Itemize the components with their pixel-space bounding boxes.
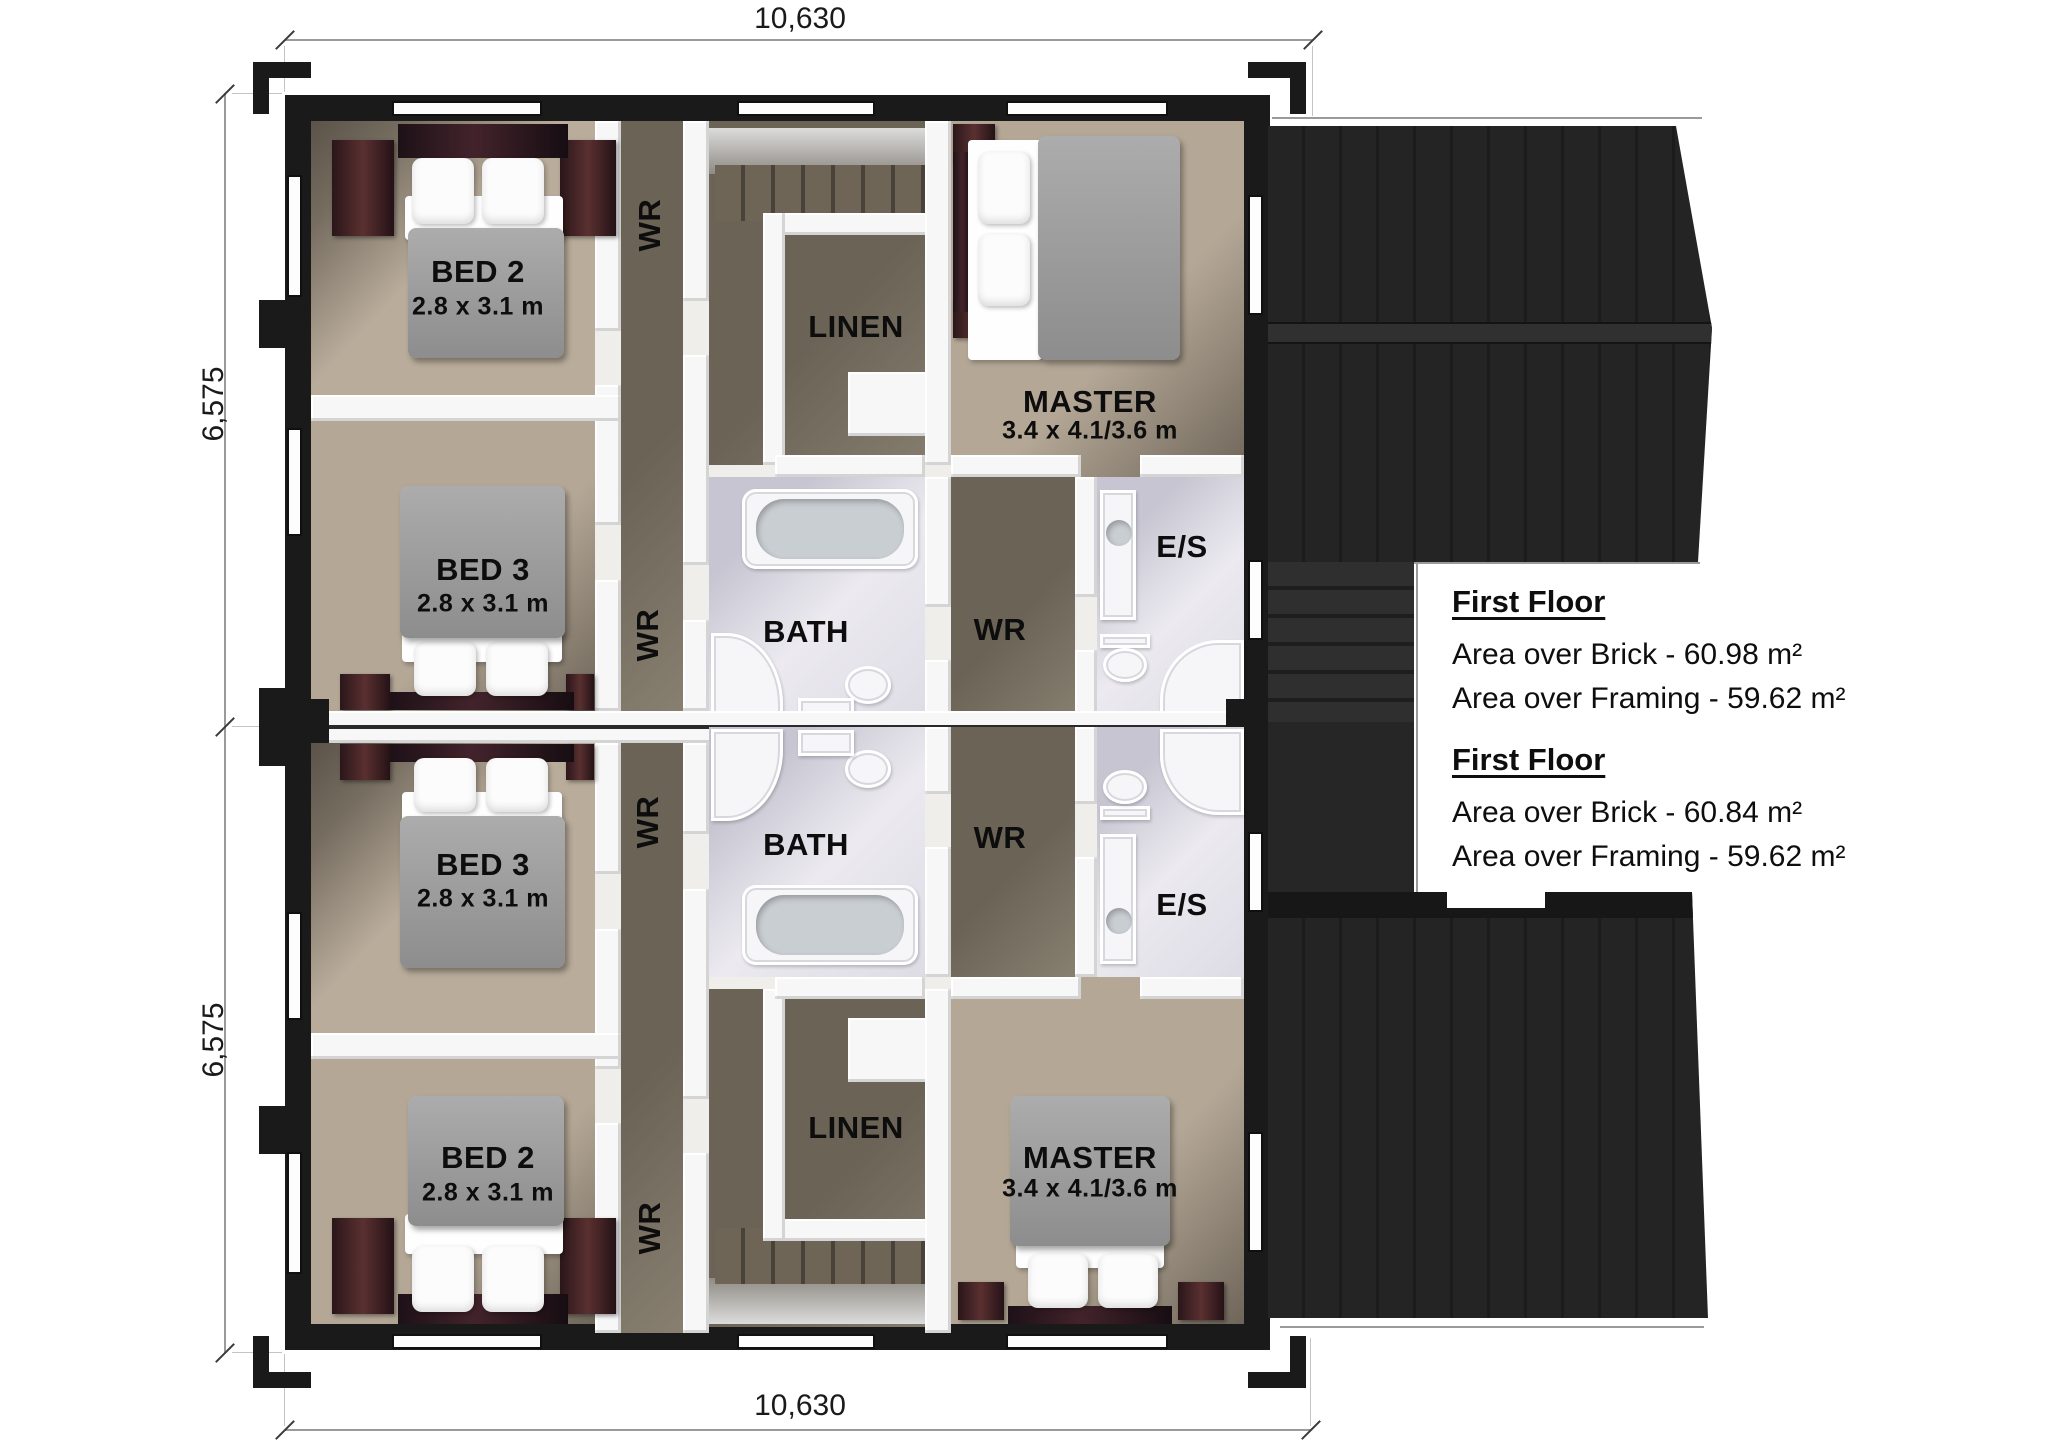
dimension-label-left-lower: 6,575: [197, 1002, 231, 1077]
interior-wall: [595, 743, 621, 874]
bedside-cabinet: [560, 140, 616, 236]
interior-wall: [683, 121, 709, 301]
pillow: [482, 1246, 544, 1312]
toilet-cistern: [1100, 634, 1150, 648]
extension-line: [1310, 1338, 1311, 1426]
room-label-es-a: E/S: [1156, 529, 1207, 565]
annotation-line: Area over Brick - 60.84 m²: [1452, 796, 1872, 830]
interior-wall: [1140, 455, 1244, 477]
interior-wall: [1140, 977, 1244, 999]
room-label-bed3-b: BED 3: [436, 847, 530, 883]
room-label-es-b: E/S: [1156, 887, 1207, 923]
room-size-bed2-a: 2.8 x 3.1 m: [412, 293, 544, 322]
interior-wall: [951, 977, 1081, 999]
roof-trim: [1290, 62, 1306, 114]
interior-wall: [925, 121, 951, 465]
pillow: [412, 1246, 474, 1312]
window: [1248, 1132, 1263, 1252]
window: [737, 1334, 875, 1349]
bedside-cabinet: [340, 674, 390, 710]
pillow: [486, 758, 548, 812]
toilet-cistern: [1100, 806, 1150, 820]
wall-stub: [259, 300, 285, 348]
window: [392, 1334, 542, 1349]
roof-ridge: [1268, 322, 1712, 344]
dimension-label-top: 10,630: [754, 2, 846, 36]
linen-wall: [763, 213, 785, 465]
annotation-line: Area over Framing - 59.62 m²: [1452, 682, 1872, 716]
window: [1248, 560, 1263, 640]
pillow: [482, 158, 544, 224]
room-label-wr-hall-b: WR: [974, 820, 1027, 856]
room-wr-a-hall-floor: [951, 477, 1075, 727]
room-label-master-b: MASTER: [1023, 1140, 1157, 1176]
window: [1248, 195, 1263, 315]
interior-wall: [925, 727, 951, 794]
window: [287, 1152, 302, 1274]
window: [1006, 1334, 1168, 1349]
roof-outline: [1414, 562, 1700, 564]
window: [287, 428, 302, 536]
roof-trim: [253, 62, 269, 114]
room-size-bed3-b: 2.8 x 3.1 m: [417, 885, 549, 914]
room-label-bath-b: BATH: [763, 827, 849, 863]
roof-lower: [1268, 878, 1710, 1325]
room-size-bed3-a: 2.8 x 3.1 m: [417, 590, 549, 619]
room-label-bed3-a: BED 3: [436, 552, 530, 588]
pillow: [1098, 1254, 1158, 1308]
room-label-wr-mid-a: WR: [630, 609, 666, 662]
dimension-line-top: [285, 39, 1313, 41]
bedside-cabinet: [340, 744, 390, 780]
floor-plan-sheet: { "drawing": { "type": "first-floor dupl…: [0, 0, 2048, 1448]
interior-wall: [1075, 857, 1097, 977]
bedside-cabinet: [332, 1218, 394, 1314]
interior-wall: [683, 743, 709, 834]
interior-wall: [1075, 477, 1097, 597]
dimension-line-bottom: [285, 1429, 1311, 1431]
pillow: [1028, 1254, 1088, 1308]
stair-roof-strip: [1268, 562, 1414, 900]
interior-wall: [311, 1033, 621, 1059]
bed-headboard: [1008, 1306, 1172, 1324]
basin: [1106, 908, 1132, 934]
room-label-linen-a: LINEN: [808, 309, 904, 345]
bed-headboard: [390, 692, 574, 710]
interior-wall: [683, 620, 709, 711]
linen-wall: [763, 1219, 931, 1241]
area-annotation-unit-a: First Floor Area over Brick - 60.98 m² A…: [1452, 584, 1872, 716]
toilet: [1103, 648, 1147, 682]
roof-trim: [253, 1336, 269, 1388]
pillow: [414, 642, 476, 696]
interior-wall: [775, 455, 925, 477]
annotation-title: First Floor: [1452, 584, 1872, 620]
interior-wall: [925, 477, 951, 607]
dimension-label-bottom: 10,630: [754, 1389, 846, 1423]
pillow: [414, 758, 476, 812]
window: [737, 101, 875, 116]
roof-outline: [1272, 117, 1702, 119]
room-label-bed2-b: BED 2: [441, 1140, 535, 1176]
interior-wall: [925, 847, 951, 977]
pillow: [978, 152, 1030, 224]
room-size-master-a: 3.4 x 4.1/3.6 m: [1002, 417, 1178, 446]
pillow: [412, 158, 474, 224]
room-label-wr-closet-b: WR: [632, 1202, 668, 1255]
basin: [798, 730, 854, 756]
room-size-master-b: 3.4 x 4.1/3.6 m: [1002, 1175, 1178, 1204]
window: [1248, 832, 1263, 912]
interior-wall: [595, 580, 621, 711]
window: [1006, 101, 1168, 116]
interior-wall: [683, 889, 709, 1099]
interior-wall: [1075, 727, 1097, 804]
vanity: [1100, 834, 1136, 964]
vanity: [1100, 490, 1136, 620]
bed-headboard: [398, 124, 568, 158]
dimension-label-left-upper: 6,575: [197, 366, 231, 441]
interior-wall: [951, 455, 1081, 477]
roof-trim: [1290, 1336, 1306, 1388]
roof-upper: [1268, 126, 1712, 562]
room-label-linen-b: LINEN: [808, 1110, 904, 1146]
window: [287, 175, 302, 297]
wall-stub: [259, 688, 285, 766]
bedside-cabinet: [958, 1282, 1004, 1320]
interior-wall: [311, 395, 621, 421]
interior-wall: [683, 1153, 709, 1333]
room-size-bed2-b: 2.8 x 3.1 m: [422, 1179, 554, 1208]
room-label-wr-mid-b: WR: [630, 796, 666, 849]
pillow: [978, 234, 1030, 306]
roof-outline: [1280, 1326, 1704, 1328]
area-annotation-unit-b: First Floor Area over Brick - 60.84 m² A…: [1452, 742, 1872, 874]
roof-top-face: [1268, 892, 1710, 918]
room-label-wr-closet-a: WR: [632, 199, 668, 252]
extension-line: [1312, 46, 1313, 116]
room-label-master-a: MASTER: [1023, 384, 1157, 420]
annotation-line: Area over Brick - 60.98 m²: [1452, 638, 1872, 672]
linen-wall: [763, 213, 931, 235]
bathtub-basin: [756, 895, 904, 955]
pillow: [486, 642, 548, 696]
bed-duvet: [1038, 136, 1180, 360]
roof-outline: [1416, 562, 1418, 898]
interior-wall: [925, 989, 951, 1333]
window: [392, 101, 542, 116]
room-label-wr-hall-a: WR: [974, 612, 1027, 648]
interior-wall: [683, 355, 709, 565]
interior-wall: [775, 977, 925, 999]
linen-shelf: [848, 372, 930, 436]
window: [287, 912, 302, 1020]
annotation-title: First Floor: [1452, 742, 1872, 778]
wall-stub: [259, 1106, 285, 1154]
stair-landing: [709, 1278, 951, 1324]
stair-roof-treads: [1268, 562, 1414, 722]
annotation-line: Area over Framing - 59.62 m²: [1452, 840, 1872, 874]
basin: [1106, 520, 1132, 546]
room-label-bath-a: BATH: [763, 614, 849, 650]
toilet: [1103, 770, 1147, 804]
bedside-cabinet: [560, 1218, 616, 1314]
bedside-cabinet: [1178, 1282, 1224, 1320]
linen-shelf: [848, 1018, 930, 1082]
room-label-bed2-a: BED 2: [431, 254, 525, 290]
bedside-cabinet: [332, 140, 394, 236]
bathtub-basin: [756, 499, 904, 559]
extension-line: [284, 1354, 285, 1426]
linen-wall: [763, 989, 785, 1241]
